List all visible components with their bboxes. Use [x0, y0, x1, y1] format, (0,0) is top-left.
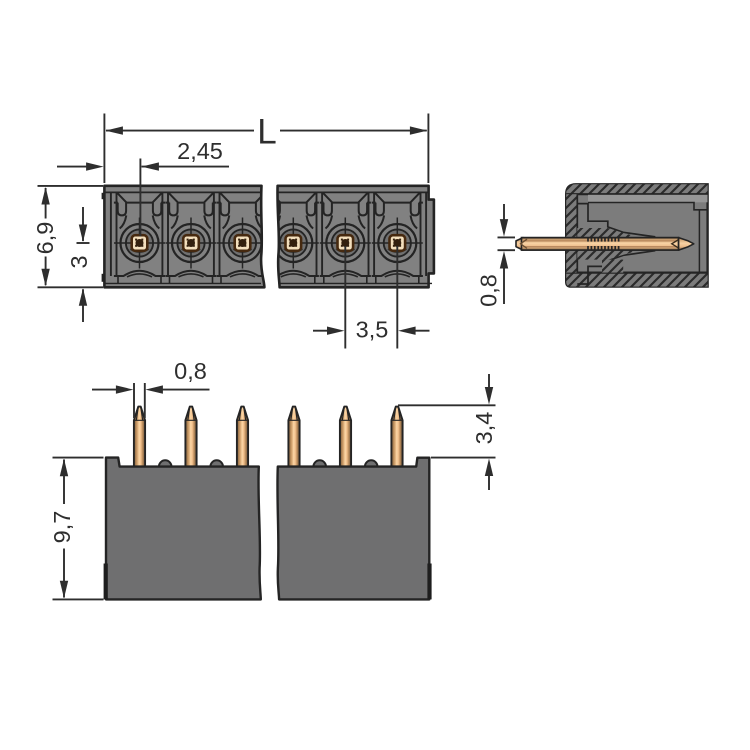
- svg-text:0,8: 0,8: [174, 358, 207, 384]
- svg-text:3,5: 3,5: [356, 317, 389, 343]
- svg-text:2,45: 2,45: [177, 138, 223, 164]
- svg-text:0,8: 0,8: [476, 274, 502, 307]
- svg-text:9,7: 9,7: [49, 511, 75, 544]
- svg-text:6,9: 6,9: [32, 222, 58, 255]
- svg-text:3: 3: [66, 255, 92, 268]
- svg-text:3,4: 3,4: [471, 412, 497, 445]
- svg-text:L: L: [257, 113, 276, 152]
